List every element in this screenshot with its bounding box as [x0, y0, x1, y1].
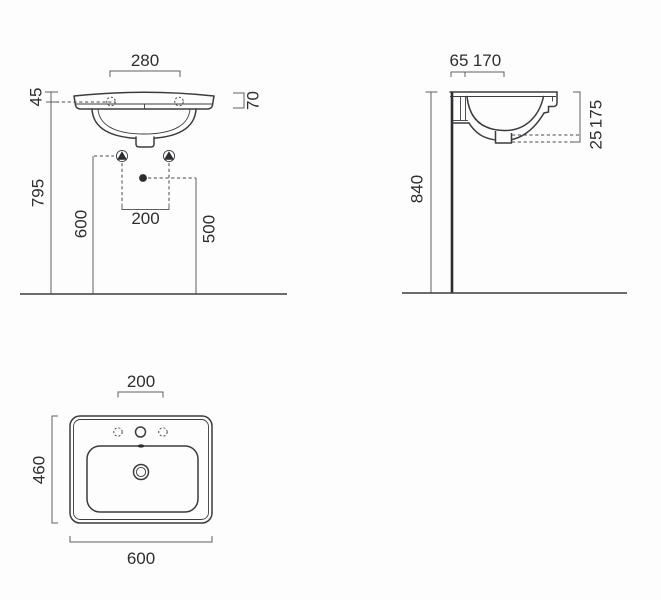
- side-view: 65 170 175 25 840: [402, 51, 627, 293]
- top-dim-200-bracket: [118, 392, 163, 398]
- front-dim-45-label: 45: [27, 88, 46, 107]
- side-dim-170-label: 170: [473, 51, 501, 70]
- top-view: 200 460 600: [30, 372, 213, 568]
- side-dim-175-label: 175: [587, 100, 606, 128]
- top-dim-600-bracket: [70, 536, 212, 542]
- top-drain-outer-icon: [134, 465, 149, 480]
- side-bowl-inner-curve: [467, 97, 544, 131]
- front-dim-70-bracket: [233, 93, 244, 108]
- front-dim-795-label: 795: [29, 179, 48, 207]
- top-tap-hole-left-icon: [114, 428, 122, 436]
- top-drain-inner-icon: [136, 467, 145, 476]
- front-bowl-inner-line: [98, 109, 190, 134]
- siphon-point-icon: [139, 174, 147, 182]
- side-front-rim-profile: [544, 92, 557, 113]
- side-dim-25-label: 25: [587, 131, 606, 150]
- side-dim-65-label: 65: [450, 51, 469, 70]
- front-dim-500-label: 500: [200, 215, 219, 243]
- front-dim-70-label: 70: [244, 91, 263, 110]
- side-dim-65-170-bracket: [451, 72, 504, 77]
- side-drain-box: [496, 131, 512, 143]
- front-dim-280-label: 280: [131, 51, 159, 70]
- top-inner-rim: [74, 420, 209, 520]
- top-tap-hole-center-icon: [136, 427, 146, 437]
- front-dim-200-label: 200: [131, 209, 159, 228]
- fixing-point-left-icon: [116, 150, 127, 161]
- front-drain-tab: [136, 137, 154, 148]
- front-rim-outline: [74, 92, 214, 109]
- fixing-point-right-icon: [163, 150, 174, 161]
- top-outer-rim: [70, 416, 212, 523]
- front-tap-hole-right-icon: [175, 97, 184, 106]
- top-overflow-icon: [138, 444, 145, 447]
- top-dim-460-label: 460: [30, 456, 49, 484]
- front-dim-280-bracket: [110, 71, 180, 77]
- top-dim-600-label: 600: [127, 549, 155, 568]
- technical-drawing-canvas: 280 45 795 70 200 600 500: [0, 0, 661, 600]
- front-dim-600-label: 600: [72, 210, 91, 238]
- top-dim-460-bracket: [52, 416, 58, 523]
- top-tap-hole-right-icon: [159, 428, 167, 436]
- front-view: 280 45 795 70 200 600 500: [20, 51, 287, 294]
- technical-drawing-page: 280 45 795 70 200 600 500: [0, 0, 661, 600]
- side-dim-840-label: 840: [408, 175, 427, 203]
- top-dim-200-label: 200: [127, 372, 155, 391]
